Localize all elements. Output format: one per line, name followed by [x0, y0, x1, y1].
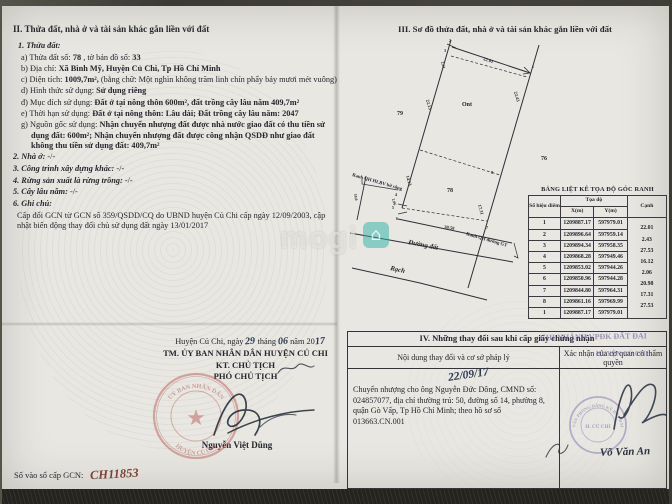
handwritten-day: 29 — [245, 336, 256, 348]
section-iii-heading: III. Sơ đồ thửa đất, nhà ở và tài sản kh… — [343, 24, 667, 34]
section-ii-parcel-info: II. Thửa đất, nhà ở và tài sản khác gắn … — [13, 24, 338, 232]
canal-width-dim: 10.0 — [353, 193, 358, 200]
neighbor-parcel-79-label: 79 — [397, 111, 403, 117]
handwritten-change-date: 22/09/17 — [447, 366, 489, 384]
edge-left-lower-dim: 14.13 — [405, 175, 413, 187]
mogi-house-icon: ⌂ — [363, 222, 389, 248]
horizontal-fold-crease — [2, 322, 337, 326]
area-value: 1009,7m², — [65, 75, 99, 84]
canal-label: Rạch — [389, 265, 406, 275]
photo-edge-left — [0, 0, 2, 504]
vertex-2: 2 — [449, 38, 451, 43]
table-row: 1 1209887.17 597979.01 22.01 2.43 27.53 … — [529, 218, 667, 229]
land-certificate-photo: II. Thửa đất, nhà ở và tài sản khác gắn … — [0, 0, 672, 504]
col-y-header: Y(m) — [594, 207, 627, 218]
use-purpose-line: đ) Mục đích sử dụng: Đất ở tại nông thôn… — [21, 98, 338, 108]
col-x-header: X(m) — [560, 207, 593, 218]
section-ii-heading: II. Thửa đất, nhà ở và tài sản khác gắn … — [13, 24, 338, 35]
edge-left-upper-dim: 22.13 — [425, 99, 433, 111]
vertex-1: 1 — [532, 64, 534, 69]
parcel-78-label: 78 — [447, 188, 453, 194]
item-6-notes-label: 6. Ghi chú: — [13, 199, 338, 209]
handwritten-month: 06 — [278, 336, 289, 348]
item-3-other-construction: 3. Công trình xây dựng khác: -/- — [13, 164, 338, 174]
edge-right-upper-dim: 22.43 — [513, 91, 521, 103]
mogi-watermark: mogi ⌂ — [280, 220, 389, 256]
area-in-words: (bằng chữ: Một nghìn không trăm linh chí… — [101, 75, 337, 84]
item-4-forest: 4. Rừng sản xuất là rừng trồng: -/- — [13, 176, 338, 186]
handwritten-year: 17 — [314, 336, 325, 348]
use-term-line: e) Thời hạn sử dụng: Đất ở tại nông thôn… — [21, 109, 338, 119]
photo-edge-bottom — [0, 489, 672, 504]
registrar-signature — [602, 371, 668, 441]
edge-bottom-dim: 30.58 — [444, 224, 456, 231]
col-point-header: Số hiệu điểm — [529, 196, 561, 218]
coordinate-table: BẢNG LIỆT KÊ TỌA ĐỘ GÓC RANH Số hiệu điể… — [528, 186, 667, 319]
item-5-perennial-trees: 5. Cây lâu năm: -/- — [13, 187, 338, 197]
edge-right-lower-dim: 17.31 — [477, 204, 485, 216]
neighbor-top-label: Ont — [462, 102, 472, 108]
col-coord-header: Tọa độ — [560, 196, 627, 207]
parcel-number-value: 78 — [73, 53, 81, 62]
vertex-3: 3 — [444, 48, 446, 53]
address-value: Xã Bình Mỹ, Huyện Củ Chi, Tp Hồ Chí Minh — [59, 64, 221, 73]
use-form-line: d) Hình thức sử dụng: Sử dụng riêng — [21, 86, 338, 96]
address-line: b) Địa chỉ: Xã Bình Mỹ, Huyện Củ Chi, Tp… — [21, 64, 338, 74]
handwritten-registry-number: CH11853 — [89, 466, 138, 484]
col-edge-header: Cạnh — [627, 196, 666, 218]
committee-line: TM. ỦY BAN NHÂN DÂN HUYỆN CỦ CHI — [148, 348, 343, 358]
transfer-entry-text: Chuyển nhượng cho ông Nguyễn Đức Dông, C… — [353, 385, 553, 428]
registry-branch-stamp-text-2: HUYỆN CỦ CHI — [596, 350, 648, 358]
neighbor-parcel-76-label: 76 — [541, 156, 547, 162]
vertex-5: 5 — [392, 205, 394, 210]
edge-length-column: 22.01 2.43 27.53 16.12 2.06 20.98 17.31 … — [627, 218, 666, 319]
registry-number-line: Số vào sổ cấp GCN: CH11853 — [14, 467, 138, 482]
initial-signature-scribble — [276, 360, 316, 378]
parcel-number-line: a) Thửa đất số: 78 , tờ bản đồ số: 33 — [21, 53, 338, 63]
edge-2-3-dim: 2.43 — [440, 61, 446, 69]
subsection-1-label: 1. Thửa đất: — [18, 41, 338, 51]
vice-chairman-signature — [200, 383, 320, 445]
planning-boundary-left-label: Ranh QH HLBV bờ sông — [351, 173, 403, 192]
vertex-6: 6 — [396, 216, 398, 221]
changes-content-column-header: Nội dung thay đổi và cơ sở pháp lý — [348, 347, 560, 368]
issue-date-line: Huyện Củ Chi, ngày 29 tháng 06 năm 2017 — [150, 336, 350, 347]
dirt-road-label: Đường đất — [407, 239, 440, 252]
vertex-7: 7 — [486, 225, 488, 230]
map-sheet-value: 33 — [132, 53, 140, 62]
coordinate-table-title: BẢNG LIỆT KÊ TỌA ĐỘ GÓC RANH — [528, 186, 667, 193]
use-origin-line: g) Nguồn gốc sử dụng: Nhận chuyển nhượng… — [21, 120, 338, 151]
mogi-watermark-text: mogi — [280, 220, 358, 256]
photo-edge-top — [0, 0, 672, 6]
vertex-8: 8 — [491, 170, 493, 175]
edge-top-dim: 22.01 — [483, 56, 495, 64]
area-line: c) Diện tích: 1009,7m², (bằng chữ: Một n… — [21, 75, 338, 85]
vertex-4: 4 — [395, 192, 397, 197]
item-2-house: 2. Nhà ở: -/- — [13, 152, 338, 162]
registrar-name: Võ Văn An — [585, 445, 665, 460]
